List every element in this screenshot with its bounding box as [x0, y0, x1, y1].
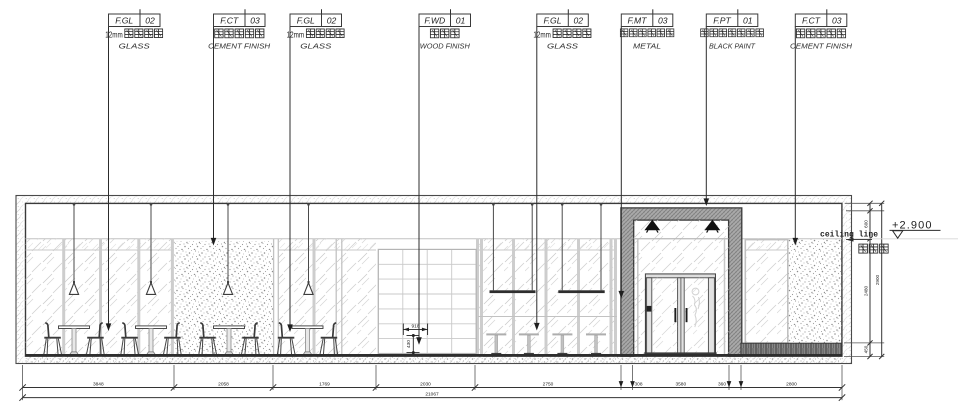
svg-text:F.WD: F.WD — [424, 16, 445, 26]
svg-text:918: 918 — [411, 323, 419, 329]
svg-text:GLASS: GLASS — [119, 42, 150, 51]
svg-text:03: 03 — [658, 16, 668, 26]
svg-text:2750: 2750 — [543, 381, 554, 387]
svg-text:308: 308 — [634, 381, 642, 387]
svg-text:ceiling line: ceiling line — [820, 230, 878, 239]
svg-text:21067: 21067 — [425, 391, 439, 397]
svg-text:F.CT: F.CT — [220, 16, 239, 26]
svg-text:F.GL: F.GL — [297, 16, 315, 26]
svg-text:3580: 3580 — [675, 381, 686, 387]
svg-text:F.PT: F.PT — [713, 16, 731, 26]
svg-text:3848: 3848 — [93, 381, 104, 387]
svg-text:F.MT: F.MT — [628, 16, 648, 26]
svg-text:02: 02 — [574, 16, 584, 26]
svg-text:GLASS: GLASS — [300, 42, 331, 51]
svg-text:03: 03 — [832, 16, 842, 26]
svg-text:2058: 2058 — [218, 381, 229, 387]
svg-text:WOOD FINISH: WOOD FINISH — [420, 42, 470, 51]
svg-text:01: 01 — [743, 16, 753, 26]
svg-text:2030: 2030 — [420, 381, 431, 387]
svg-text:F.CT: F.CT — [802, 16, 821, 26]
svg-text:600: 600 — [863, 220, 868, 228]
svg-text:12mm: 12mm — [105, 30, 123, 40]
svg-text:450: 450 — [863, 345, 868, 353]
svg-text:2900: 2900 — [875, 274, 880, 285]
svg-text:1769: 1769 — [319, 381, 330, 387]
svg-text:360: 360 — [718, 381, 726, 387]
svg-text:430: 430 — [406, 340, 412, 348]
svg-text:02: 02 — [145, 16, 155, 26]
svg-text:2800: 2800 — [786, 381, 797, 387]
svg-text:02: 02 — [327, 16, 337, 26]
svg-text:GLASS: GLASS — [547, 42, 578, 51]
svg-text:03: 03 — [250, 16, 260, 26]
svg-text:BLACK PAINT: BLACK PAINT — [709, 42, 756, 51]
svg-text:METAL: METAL — [633, 42, 661, 51]
svg-text:12mm: 12mm — [287, 30, 305, 40]
svg-text:01: 01 — [456, 16, 466, 26]
svg-text:F.GL: F.GL — [544, 16, 562, 26]
svg-text:12mm: 12mm — [533, 30, 551, 40]
svg-text:+2.900: +2.900 — [892, 219, 933, 231]
svg-text:CEMENT FINISH: CEMENT FINISH — [208, 42, 271, 51]
svg-text:2480: 2480 — [863, 285, 868, 296]
svg-text:F.GL: F.GL — [115, 16, 133, 26]
svg-text:CEMENT FINISH: CEMENT FINISH — [790, 42, 853, 51]
